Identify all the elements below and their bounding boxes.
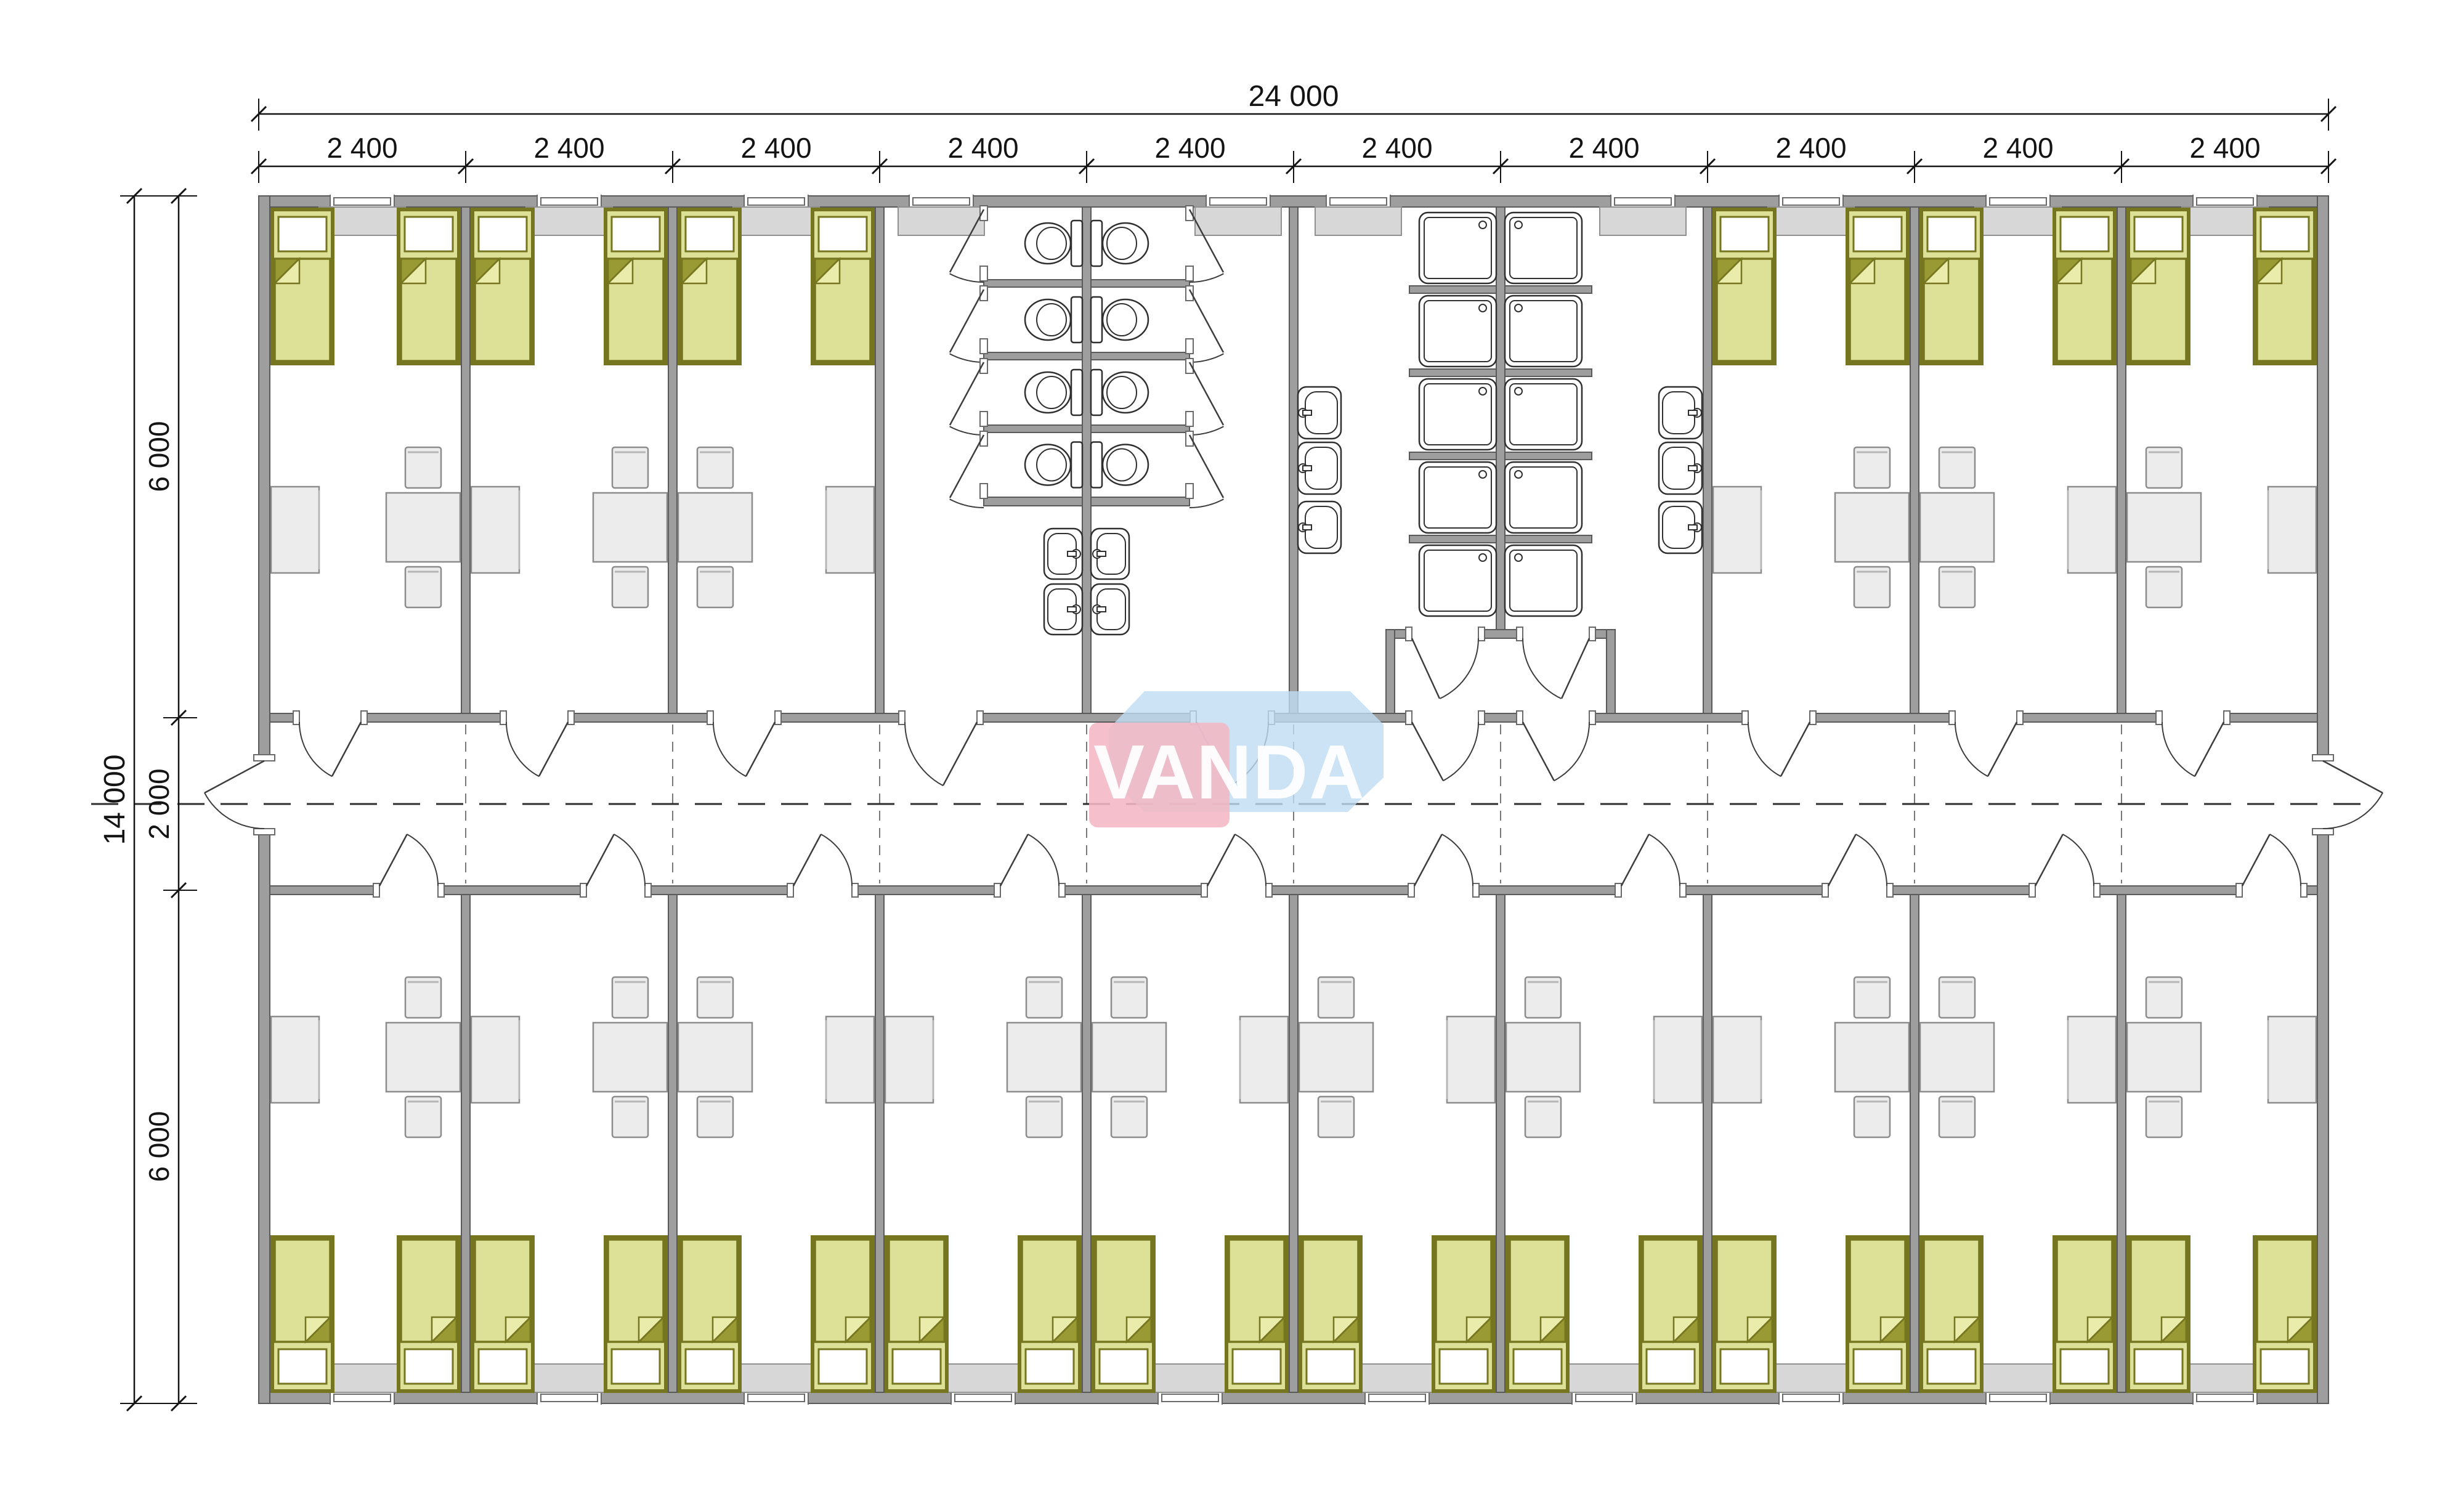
dimension-label-module: 2 400 [1775,132,1846,164]
shower-vestibule-stub [1386,630,1395,713]
chair [1318,1097,1354,1137]
exterior-door-leaf [2323,761,2383,793]
wc-stall-partition [984,425,1082,432]
stall-door-swing [950,354,984,362]
door-swing [407,834,438,886]
door-jamb [1742,711,1748,725]
door-leaf [1828,834,1856,886]
window-frame [748,1394,804,1402]
door-jamb [254,829,275,835]
sink [1298,442,1341,494]
sink [1659,442,1702,494]
chair [612,977,648,1018]
bed-pillow [2061,217,2109,251]
basin-tap-handle [1097,551,1106,556]
bed [2255,209,2315,363]
vestibule-door-swing [1440,638,1478,699]
vestibule-door-opening [1523,629,1589,639]
partition-wall-bottom-band [1703,895,1712,1392]
exterior-door-swing [2323,793,2383,829]
wc-stall-end-wall [1091,497,1189,506]
window-frame [1783,198,1839,205]
basin-tap-handle [1097,607,1106,612]
toilet-cistern [1091,221,1102,266]
door-swing [2270,834,2301,886]
toilet-cistern [1091,442,1102,488]
window-frame [1990,198,2046,205]
door-jamb [2224,711,2230,725]
window-frame [2197,198,2253,205]
door-opening [1000,885,1059,895]
window-frame [334,1394,391,1402]
door-jamb [2017,711,2023,725]
bed [2054,209,2115,363]
shower-vestibule-stub [1607,630,1615,713]
table [1920,493,1994,562]
partition-wall-bottom-band [875,895,884,1392]
bed-pillow [2134,1349,2182,1384]
door-jamb [1949,711,1955,725]
shower-partition [1505,286,1592,293]
vestibule-door-swing [1523,638,1561,699]
chair [612,1097,648,1137]
door-jamb [1589,627,1595,641]
partition-wall-bottom-band [1910,895,1919,1392]
door-jamb [1615,883,1621,897]
basin-tap-handle [1068,607,1076,612]
chair [1854,567,1890,607]
shower-central-wall [1496,207,1505,630]
door-swing [1856,834,1887,886]
table [1835,493,1909,562]
basin-tap-handle [1068,551,1076,556]
bed-pillow [1720,1349,1769,1384]
desk [471,1017,519,1103]
toilet-bowl [1025,223,1071,264]
exterior-door-opening [258,761,270,829]
door-opening [1523,713,1589,723]
desk [1713,1017,1761,1103]
stall-door-swing [950,274,984,282]
door-opening [2242,885,2301,895]
door-jamb [1517,627,1523,641]
door-jamb [1266,883,1272,897]
toilet [1025,442,1082,488]
shower-tray-rim [1505,213,1582,283]
window-frame [913,198,970,205]
table [1920,1023,1994,1092]
toilet [1025,370,1082,415]
shower-tray-rim [1419,462,1496,533]
toilet-bowl [1025,372,1071,413]
door-leaf [379,834,407,886]
wash-basin [1044,529,1082,579]
stall-door-swing [1189,274,1223,282]
door-opening [713,713,775,723]
door-jamb [2029,883,2035,897]
window-sill [1975,207,2061,235]
bed [1714,1237,1775,1391]
door-swing [1748,722,1781,776]
exterior-door-swing [205,793,264,829]
shower-tray-rim [1505,379,1582,450]
toilet-cistern [1071,442,1082,488]
bed-pillow [1100,1349,1148,1384]
door-opening [905,713,977,723]
door-jamb [1589,711,1595,725]
table [386,1023,460,1092]
door-leaf [1412,722,1443,781]
door-opening [1748,713,1810,723]
toilet-cistern [1091,370,1102,415]
window-frame [1162,1394,1218,1402]
bed-pillow [2261,1349,2309,1384]
vestibule-door-leaf [1412,638,1440,699]
shower-partition [1505,369,1592,376]
toilet-cistern [1071,297,1082,343]
door-jamb [2312,755,2333,761]
door-jamb [775,711,781,725]
bed-pillow [405,217,453,251]
door-opening [586,885,645,895]
toilet [1091,297,1148,343]
partition-wall-top-band [461,207,470,713]
stall-door-leaf [1189,290,1223,352]
bed [1433,1237,1494,1391]
bed-pillow [405,1349,453,1384]
door-swing [1649,834,1680,886]
table [386,493,460,562]
partition-wall-top-band [1703,207,1712,713]
bed-pillow [278,1349,326,1384]
stall-door-swing [1189,426,1223,435]
desk [885,1017,933,1103]
bed [1300,1237,1361,1391]
desk [271,1017,319,1103]
bed-pillow [2061,1349,2109,1384]
corridor-wall-bottom [270,886,2317,895]
table [678,493,752,562]
door-jamb [568,711,574,725]
sink [1298,501,1341,553]
sink-tap-handle [1688,410,1697,415]
window-frame [2197,1394,2253,1402]
door-swing [2063,834,2094,886]
chair [405,977,441,1018]
door-leaf [1621,834,1649,886]
window-sill [1561,1364,1647,1392]
watermark-layer: VANDA [1089,691,1384,827]
door-jamb [1059,883,1065,897]
wash-basin [1091,584,1129,635]
table [2127,1023,2201,1092]
door-jamb [899,711,905,725]
sink-tap-handle [1303,466,1311,471]
door-leaf [746,722,775,776]
bed [1640,1237,1701,1391]
bed [2128,1237,2189,1391]
window-sill [526,207,612,235]
stall-door-jamb [1186,266,1193,281]
shower-tray [1419,462,1496,533]
sink [1659,387,1702,439]
door-leaf [2242,834,2270,886]
window-frame [1210,198,1266,205]
chair [2146,447,2182,488]
door-opening [1414,885,1473,895]
chair [1318,977,1354,1018]
bed-pillow [1514,1349,1562,1384]
desk [826,1017,874,1103]
door-jamb [2312,829,2333,835]
window-sill [733,1364,819,1392]
partition-wall-bottom-band [668,895,677,1392]
door-jamb [1473,883,1479,897]
stall-door-jamb [1186,484,1193,498]
wc-stall-partition [984,352,1082,360]
partition-wall-bottom-band [1289,895,1298,1392]
chair [1525,1097,1561,1137]
bed-pillow [686,217,734,251]
bed [1226,1237,1287,1391]
partition-wall-bottom-band [1496,895,1505,1392]
desk [1713,487,1761,573]
shower-tray [1419,213,1496,283]
bed-pillow [2261,217,2309,251]
stall-door-leaf [950,290,984,352]
bed [272,1237,333,1391]
sink-tap-handle [1303,525,1311,530]
shower-partition [1409,286,1496,293]
bed [813,1237,873,1391]
shower-tray [1505,213,1582,283]
toilet [1025,297,1082,343]
door-opening [793,885,852,895]
toilet [1025,221,1082,266]
door-jamb [373,883,379,897]
window-sill [1195,207,1281,235]
door-swing [506,722,539,776]
door-swing [905,722,943,786]
door-jamb [2156,711,2162,725]
bed [1093,1237,1154,1391]
wc-central-wall [1082,207,1091,713]
dimension-label-module: 2 400 [326,132,397,164]
chair [1854,1097,1890,1137]
shower-tray [1419,379,1496,450]
window-sill [1147,1364,1233,1392]
chair [697,447,733,488]
bed-pillow [1854,217,1902,251]
chair [1111,1097,1147,1137]
door-jamb [1478,627,1485,641]
chair [405,567,441,607]
window-frame [1576,1394,1632,1402]
desk [1654,1017,1702,1103]
chair [1854,447,1890,488]
desk [2268,1017,2316,1103]
shower-tray [1505,296,1582,367]
shower-partition [1409,452,1496,460]
window-frame [1369,1394,1425,1402]
desk [1447,1017,1495,1103]
chair [697,567,733,607]
door-jamb [787,883,793,897]
bed [1507,1237,1568,1391]
stall-door-jamb [1186,412,1193,426]
sink-tap-handle [1688,466,1697,471]
door-leaf [1414,834,1442,886]
partition-wall-top-band [1910,207,1919,713]
bed [813,209,873,363]
stall-door-leaf [1189,435,1223,498]
door-jamb [2301,883,2307,897]
chair [405,447,441,488]
shower-tray-rim [1505,545,1582,616]
window-sill [1600,207,1686,235]
bed-pillow [1233,1349,1281,1384]
dimension-label-module: 2 400 [947,132,1018,164]
wc-stall-partition [1091,425,1189,432]
partition-wall-top-band [2117,207,2126,713]
wash-basin [1044,584,1082,635]
stall-door-leaf [1189,362,1223,425]
chair [612,567,648,607]
door-swing [1955,722,1988,776]
chair [1939,1097,1975,1137]
stall-door-leaf [950,362,984,425]
toilet-bowl [1103,299,1148,340]
chair [1939,447,1975,488]
door-opening [1621,885,1680,895]
sink [1659,501,1702,553]
door-jamb [1406,627,1412,641]
door-swing [1554,722,1589,781]
door-jamb [1810,711,1816,725]
table [2127,493,2201,562]
bed-pillow [1720,217,1769,251]
bed [399,209,459,363]
shower-tray [1505,462,1582,533]
stall-door-leaf [950,435,984,498]
partition-wall-top-band [668,207,677,713]
desk [2068,487,2116,573]
door-opening [1412,713,1478,723]
vestibule-door-leaf [1562,638,1589,699]
dimension-label-depth-segment: 6 000 [143,421,175,492]
bed-pillow [1927,217,1976,251]
stall-door-jamb [980,266,987,281]
door-jamb [1408,883,1414,897]
sink-tap-handle [1688,525,1697,530]
chair [697,977,733,1018]
stall-door-swing [950,499,984,508]
dimension-label-total-depth: 14 000 [99,755,131,845]
door-jamb [1406,711,1412,725]
door-opening [1828,885,1887,895]
stall-door-jamb [980,412,987,426]
shower-tray-rim [1419,379,1496,450]
bed [606,209,666,363]
door-jamb [438,883,444,897]
toilet [1091,221,1148,266]
door-jamb [1680,883,1686,897]
window-frame [1990,1394,2046,1402]
toilet-cistern [1071,221,1082,266]
table [1007,1023,1081,1092]
desk [271,487,319,573]
bed [472,1237,533,1391]
door-jamb [1201,883,1207,897]
dimension-label-module: 2 400 [1154,132,1225,164]
toilet [1091,370,1148,415]
toilet-bowl [1025,299,1071,340]
chair [1026,977,1062,1018]
door-jamb [2094,883,2100,897]
toilet [1091,442,1148,488]
bed [1847,1237,1908,1391]
window-sill [1315,207,1401,235]
window-sill [940,1364,1026,1392]
bed [272,209,333,363]
bed-pillow [1440,1349,1488,1384]
chair [1111,977,1147,1018]
door-jamb [254,755,275,761]
door-opening [299,713,361,723]
dimension-label-module: 2 400 [1982,132,2053,164]
desk [1240,1017,1288,1103]
bed-pillow [819,1349,867,1384]
desk [2268,487,2316,573]
door-jamb [1478,711,1485,725]
chair [1854,977,1890,1018]
window-frame [955,1394,1011,1402]
stall-door-swing [1189,499,1223,508]
door-jamb [500,711,506,725]
bed [1714,209,1775,363]
shower-tray [1505,379,1582,450]
dimension-label-total-width: 24 000 [1249,80,1339,113]
shower-tray [1505,545,1582,616]
table [1506,1023,1580,1092]
toilet-bowl [1103,223,1148,264]
bed [1921,1237,1982,1391]
bed [2255,1237,2315,1391]
toilet-cistern [1091,297,1102,343]
shower-tray [1419,296,1496,367]
bed-pillow [1927,1349,1976,1384]
door-swing [2162,722,2195,776]
window-sill [1768,207,1854,235]
bed-pillow [893,1349,941,1384]
shower-partition [1505,535,1592,543]
shower-partition [1409,535,1496,543]
desk [826,487,874,573]
bed-pillow [1307,1349,1355,1384]
wc-stall-partition [1091,280,1189,287]
door-jamb [645,883,651,897]
window-sill [733,207,819,235]
door-leaf [332,722,361,776]
door-jamb [1887,883,1893,897]
sink [1298,387,1341,439]
bed-pillow [686,1349,734,1384]
chair [2146,977,2182,1018]
door-leaf [2195,722,2224,776]
stall-door-jamb [980,339,987,354]
vestibule-door-opening [1412,629,1478,639]
shower-partition [1409,369,1496,376]
